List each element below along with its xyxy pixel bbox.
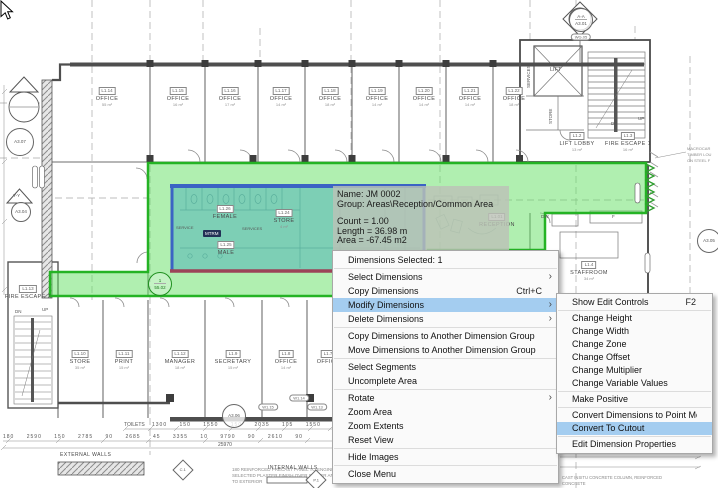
menu-item[interactable]: Change Width › [557, 325, 712, 338]
stair-core [520, 40, 650, 162]
menu-header: Dimensions Selected: 1 › [333, 253, 558, 267]
menu-item[interactable]: Reset View › [333, 433, 558, 447]
menu-item[interactable]: Copy Dimensions Ctrl+C › [333, 284, 558, 298]
menu-item[interactable]: Change Multiplier › [557, 364, 712, 377]
application-canvas: L1.14 OFFICE 55 m² L1.15 OFFICE 16 m² L1… [0, 0, 718, 488]
menu-item[interactable]: Modify Dimensions › [333, 298, 558, 312]
menu-item[interactable]: Select Segments › [333, 360, 558, 374]
menu-item[interactable]: Uncomplete Area › [333, 374, 558, 388]
menu-item[interactable]: Hide Images › [333, 450, 558, 464]
menu-item[interactable]: Change Variable Values › [557, 377, 712, 390]
menu-item[interactable]: Copy Dimensions to Another Dimension Gro… [333, 329, 558, 343]
menu-item[interactable]: Rotate › [333, 391, 558, 405]
selection-info-tooltip: Name: JM 0002 Group: Areas\Reception/Com… [333, 186, 509, 250]
context-menu: Dimensions Selected: 1 › › Select Dimens… [332, 250, 559, 484]
menu-item[interactable]: Convert Dimensions to Point Mode › [557, 409, 712, 422]
submenu-arrow-icon: › [544, 312, 552, 326]
tooltip-line: Area = -67.45 m2 [337, 236, 509, 246]
mouse-cursor-icon [0, 0, 15, 21]
legend-swatches [58, 462, 307, 483]
tooltip-line: Group: Areas\Reception/Common Area [337, 200, 509, 210]
menu-item[interactable]: Edit Dimension Properties › [557, 438, 712, 451]
menu-item[interactable]: Change Height › [557, 312, 712, 325]
menu-item[interactable]: Change Zone › [557, 338, 712, 351]
submenu-arrow-icon: › [544, 270, 552, 284]
menu-item[interactable]: Close Menu › [333, 467, 558, 481]
submenu-arrow-icon: › [544, 391, 552, 405]
menu-item[interactable]: Select Dimensions › [333, 270, 558, 284]
submenu-arrow-icon: › [544, 298, 552, 312]
menu-item[interactable]: Convert To Cutout › [557, 422, 712, 435]
menu-item[interactable]: Show Edit Controls F2 › [557, 296, 712, 309]
menu-item[interactable]: Zoom Area › [333, 405, 558, 419]
modify-dimensions-submenu: Show Edit Controls F2 › › Change Height … [556, 293, 713, 454]
selected-area-zigzag-edge [646, 164, 654, 212]
menu-item[interactable]: Delete Dimensions › [333, 312, 558, 326]
menu-item[interactable]: Make Positive › [557, 393, 712, 406]
menu-item[interactable]: Move Dimensions to Another Dimension Gro… [333, 343, 558, 357]
menu-item[interactable]: Zoom Extents › [333, 419, 558, 433]
menu-item[interactable]: Change Offset › [557, 351, 712, 364]
